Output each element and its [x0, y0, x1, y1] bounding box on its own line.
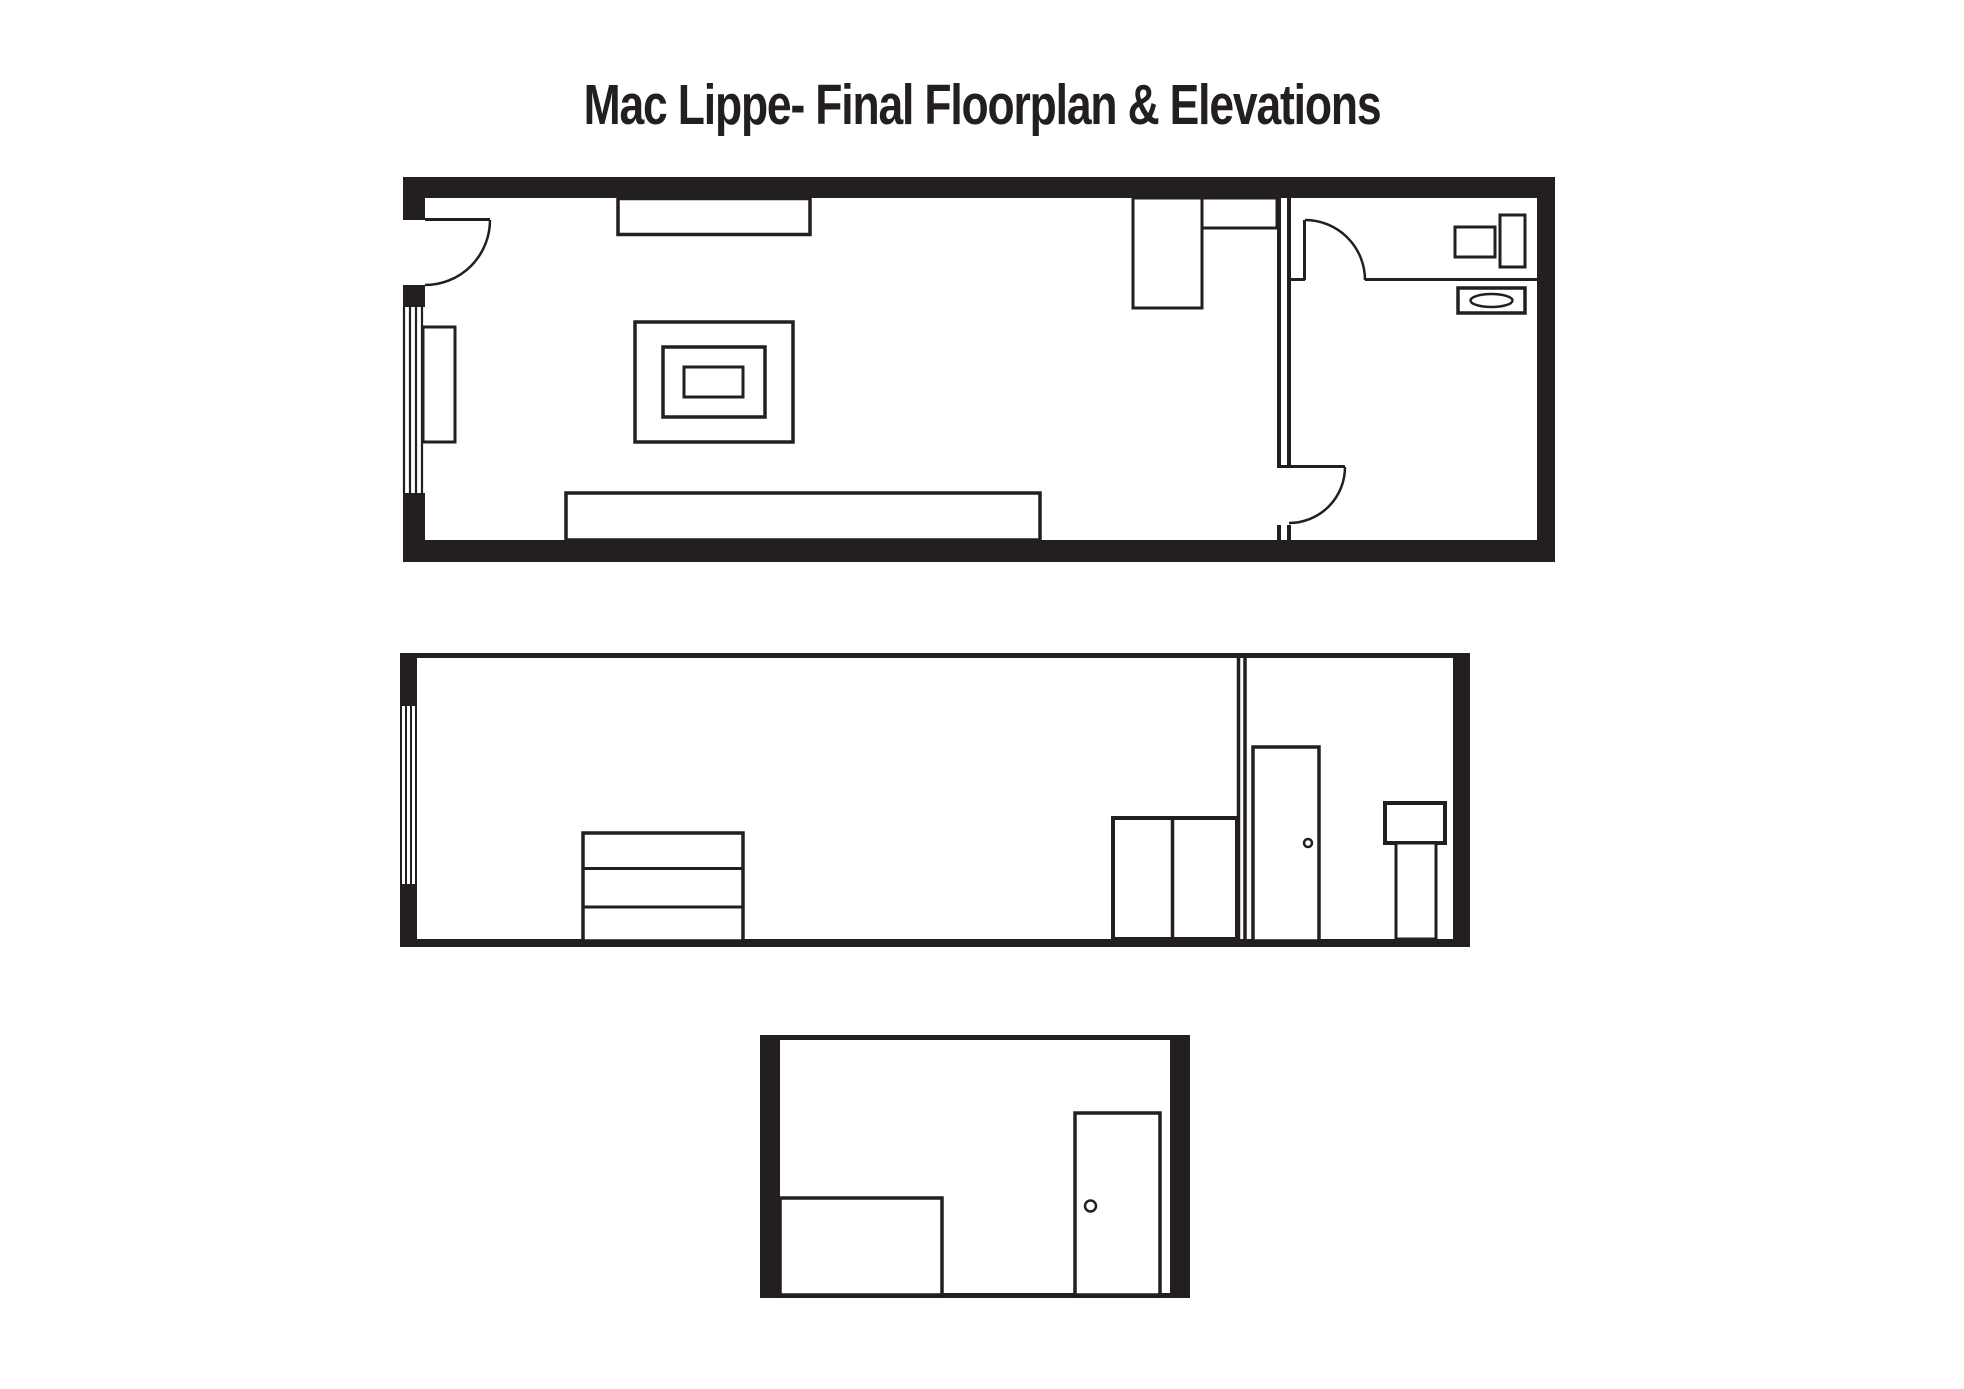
toilet-tank — [1500, 215, 1525, 267]
desk-shelf — [1202, 198, 1277, 228]
bathroom-door-swing — [1305, 220, 1365, 280]
wall-left-upper — [403, 177, 425, 220]
sofa — [566, 493, 1040, 540]
wall-left-upper — [400, 653, 417, 706]
ceiling-line — [400, 653, 1470, 658]
bed — [780, 1198, 942, 1295]
wall-bottom — [403, 540, 1555, 562]
coffee-table-inner — [684, 367, 743, 397]
pedestal-sink-top — [1385, 803, 1445, 843]
window-seat — [423, 327, 455, 442]
toilet-bowl — [1455, 227, 1495, 257]
desk — [1133, 198, 1202, 308]
dresser — [583, 833, 743, 941]
long-wall-elevation — [400, 653, 1470, 947]
ceiling-line — [760, 1035, 1190, 1040]
wall-shelf — [618, 199, 810, 235]
entry-door-swing — [425, 220, 490, 285]
end-wall-elevation — [760, 1035, 1190, 1298]
drawings-canvas — [0, 0, 1964, 1389]
interior-door-swing — [1289, 467, 1345, 523]
bathroom-sink-basin — [1471, 294, 1513, 307]
wall-left-lower — [400, 884, 417, 939]
door — [1253, 747, 1319, 941]
wardrobe — [1113, 818, 1237, 939]
floorplan — [403, 177, 1555, 562]
wall-left-lower — [403, 493, 425, 540]
wall-right — [1170, 1035, 1190, 1298]
pedestal-sink-base — [1396, 843, 1436, 939]
wall-right — [1453, 658, 1470, 939]
wall-top — [403, 177, 1555, 198]
wall-left-mid — [403, 285, 425, 307]
door — [1075, 1113, 1160, 1295]
wall-right — [1537, 177, 1555, 562]
wall-left — [760, 1035, 780, 1298]
